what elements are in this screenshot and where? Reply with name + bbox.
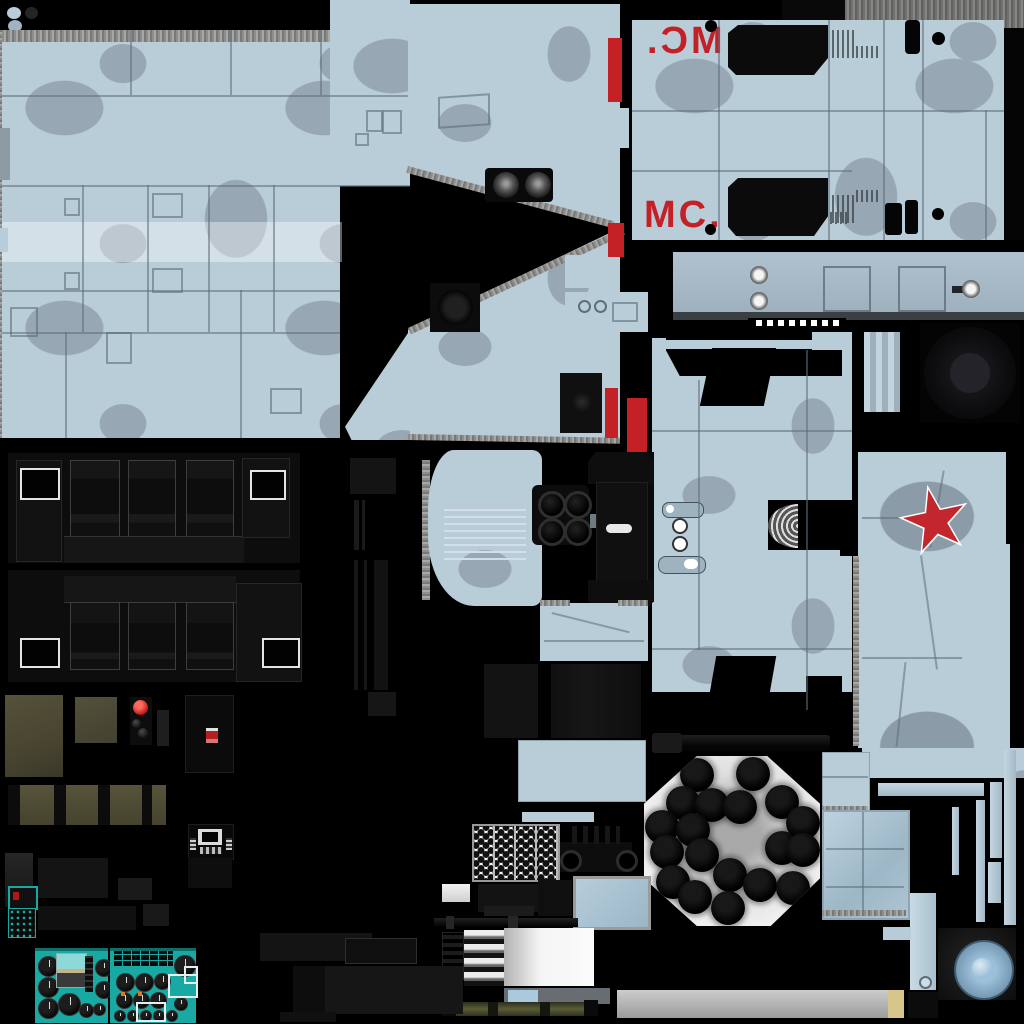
dark-slab <box>38 858 108 898</box>
panel-line <box>652 430 852 432</box>
panel-notch <box>1006 452 1024 544</box>
window-cutout <box>700 348 776 406</box>
panel-line <box>2 95 410 97</box>
device-red-dot <box>13 892 19 900</box>
knob-dome <box>972 958 992 978</box>
rod-fitting <box>446 916 454 929</box>
panel-line <box>862 657 962 659</box>
red-placard <box>206 728 218 743</box>
camo-strip-right <box>862 748 1024 778</box>
blue-chip <box>508 990 538 1002</box>
black-button <box>132 719 141 728</box>
panel-line <box>985 110 987 240</box>
panel-line <box>806 350 808 710</box>
black-plate <box>551 664 641 738</box>
instrument-gauge <box>116 973 135 992</box>
access-hatch-outline <box>152 268 183 293</box>
rocket-tube <box>442 1002 598 1016</box>
fastener-dot <box>578 300 591 313</box>
serrated-edge <box>540 600 570 606</box>
soft-dot <box>572 392 592 412</box>
porthole <box>672 536 688 552</box>
dark-slab <box>118 878 152 900</box>
instrument-gauge <box>58 993 81 1016</box>
blue-bar-vertical <box>976 800 985 922</box>
tube-opening <box>538 518 566 546</box>
tail-boom-star-panel <box>858 452 1010 748</box>
breaker-grid <box>113 951 173 967</box>
access-hatch-outline <box>64 198 80 216</box>
grey-slab <box>157 710 169 746</box>
color-swatch-black <box>25 7 38 19</box>
mech-cluster <box>538 880 572 916</box>
rocket-tube-opening <box>736 757 770 791</box>
access-hatch-outline <box>270 388 302 414</box>
glass-frame-line <box>862 812 864 914</box>
edge-tab <box>0 128 10 180</box>
tail-fin-wedge-tip <box>345 330 410 440</box>
panel-line <box>652 648 852 650</box>
rivet-strip-edge <box>673 312 1024 320</box>
dark-tab <box>280 1012 336 1022</box>
thin-rod <box>362 500 365 550</box>
frame-strut <box>544 640 644 642</box>
red-button <box>133 700 148 715</box>
fastener <box>750 292 768 310</box>
attitude-indicator <box>56 953 87 988</box>
blue-bar-vertical <box>990 782 1002 858</box>
rocket-tube-opening <box>786 833 820 867</box>
panel-line <box>632 110 1004 112</box>
panel-line <box>230 30 232 95</box>
orange-tick <box>121 992 125 996</box>
tube-opening <box>564 518 592 546</box>
black-plate <box>484 664 538 738</box>
display-window <box>20 468 60 500</box>
rocket-tube-opening <box>713 858 747 892</box>
red-marker-bar <box>605 388 618 438</box>
rocket-tube-opening <box>743 868 777 902</box>
rack-tray <box>64 536 244 563</box>
vent-hatching <box>856 46 880 58</box>
dark-slab-frame <box>345 938 417 964</box>
device-boss <box>616 850 638 872</box>
belt-divider <box>8 785 20 825</box>
pin-block <box>200 847 222 854</box>
thin-rod <box>364 560 367 690</box>
bracket-screw <box>919 976 932 989</box>
device-fins <box>572 826 620 844</box>
black-dot <box>932 208 944 220</box>
dark-slab <box>293 966 325 1014</box>
cowling-black-end <box>1004 28 1024 240</box>
panel-line <box>922 20 924 240</box>
tube-opening <box>564 491 592 519</box>
black-button <box>138 728 148 738</box>
access-hatch-outline <box>64 272 80 290</box>
dash-marks <box>756 320 840 326</box>
white-gradient-panel <box>504 928 594 986</box>
panel-line <box>718 20 720 240</box>
display-window <box>250 470 286 500</box>
panel-line <box>883 20 885 240</box>
camo-mid-panel <box>518 740 646 802</box>
small-hatch-piece <box>597 108 629 148</box>
white-box-small <box>442 884 470 902</box>
panel-line <box>65 332 67 438</box>
rocket-tube-opening <box>650 835 684 869</box>
seat-piece-body <box>596 482 648 584</box>
edge-tab <box>0 228 8 252</box>
texture-atlas-sheet: MC. MC. <box>0 0 1024 1024</box>
ribbed-module <box>186 602 234 670</box>
access-hatch-outline <box>10 307 38 337</box>
panel-line <box>130 30 132 95</box>
glass-panel <box>822 810 910 920</box>
dome-light <box>525 172 551 198</box>
dark-slab <box>143 904 169 926</box>
access-square <box>823 266 871 312</box>
window-cutout <box>708 656 776 704</box>
l-bracket-arm <box>883 927 911 940</box>
panel-edge-strip <box>2 30 340 42</box>
orange-tick <box>138 992 142 996</box>
perforated-grille <box>472 824 560 882</box>
thin-rod <box>374 560 388 690</box>
camo-strip-small <box>522 812 594 822</box>
window-cutout <box>806 676 842 706</box>
access-square <box>898 266 946 312</box>
vertical-ribbed-strip <box>85 956 93 992</box>
rod-foot <box>368 692 396 716</box>
mech-bar <box>484 906 534 916</box>
serrated-edge <box>822 910 906 916</box>
dark-slab <box>38 906 136 930</box>
tan-segment <box>888 990 904 1018</box>
instrument-gauge <box>38 998 59 1019</box>
access-hatch-outline <box>366 110 383 132</box>
rack-tray <box>64 576 236 603</box>
panel-line <box>82 185 84 332</box>
gauge-frame <box>136 1002 166 1022</box>
hatch-detail <box>612 302 638 322</box>
black-fitting <box>885 203 902 235</box>
blue-bar-horizontal <box>878 783 984 796</box>
fastener <box>962 280 980 298</box>
seat-piece-top <box>588 452 654 484</box>
belt-divider <box>142 785 152 825</box>
black-notch <box>840 510 854 556</box>
pin-block <box>226 838 232 850</box>
panel-line <box>208 185 210 332</box>
dark-slab <box>188 858 232 888</box>
olive-box-small <box>75 697 117 743</box>
louver-vents <box>444 508 526 560</box>
rocket-pod-face <box>644 756 820 926</box>
access-hatch-outline <box>152 193 183 218</box>
exhaust-opening-bottom <box>728 178 828 236</box>
tube-cap <box>584 1000 598 1016</box>
device-boss <box>560 850 582 872</box>
access-hatch-outline <box>106 332 132 364</box>
tube-band <box>540 1002 550 1016</box>
exhaust-opening-top <box>728 25 828 75</box>
blue-bar-vertical <box>952 807 959 875</box>
panel-line <box>320 30 322 95</box>
connector-window-inner <box>202 832 218 842</box>
red-marker-bar <box>608 223 624 257</box>
black-fitting <box>905 20 920 54</box>
black-fitting <box>905 200 918 234</box>
gun-muzzle <box>652 733 682 753</box>
gauge-frame <box>184 966 198 984</box>
windshield-frame-piece <box>540 603 648 661</box>
camo-light-band <box>2 222 342 262</box>
fuselage-panel-column <box>330 0 410 186</box>
belt-divider <box>98 785 110 825</box>
panel-outline-trapezoid <box>438 93 490 129</box>
window-cutout <box>806 350 842 376</box>
teal-keypad <box>8 908 36 938</box>
panel-line <box>2 332 340 334</box>
ribbed-module <box>128 602 176 670</box>
blue-bar-vertical <box>1004 750 1016 925</box>
box-lid-line <box>822 776 868 778</box>
glass-frame-line <box>826 886 904 888</box>
tube-opening <box>538 491 566 519</box>
glass-box <box>573 876 651 930</box>
vent-circle <box>438 290 473 325</box>
instrument-gauge <box>93 1003 106 1016</box>
porthole <box>672 518 688 534</box>
rocket-tube-opening <box>776 871 810 905</box>
small-hatch-piece <box>565 255 593 288</box>
black-end-box <box>908 992 938 1018</box>
metal-bar <box>617 990 889 1018</box>
panel-line <box>273 185 275 332</box>
serrated-edge <box>618 600 648 606</box>
thin-rod <box>354 560 358 690</box>
rocket-tube-opening <box>678 880 712 914</box>
panel-line <box>698 380 700 650</box>
vent-hatching <box>832 30 854 58</box>
striped-roller <box>464 930 504 986</box>
tube-band <box>488 1002 498 1016</box>
instrument-gauge <box>174 997 188 1011</box>
louver-strip <box>864 332 900 412</box>
olive-box-large <box>5 695 63 777</box>
capsule-dot <box>666 505 674 513</box>
display-window <box>20 638 60 668</box>
access-hatch-outline <box>355 133 369 146</box>
blue-bar-vertical <box>988 862 1001 903</box>
panel-line <box>147 185 149 332</box>
color-swatch-light-blue <box>7 7 21 19</box>
black-dot <box>705 20 717 32</box>
capsule-pill <box>684 559 698 569</box>
panel-line <box>2 185 410 187</box>
belt-divider <box>54 785 66 825</box>
fastener-dot <box>594 300 607 313</box>
serrated-edge <box>853 556 859 746</box>
instrument-gauge <box>135 973 154 992</box>
thin-rod <box>354 500 359 550</box>
fastener <box>750 266 768 284</box>
ribbed-module <box>70 602 120 670</box>
seat-belt-pill <box>606 524 632 533</box>
instrument-gauge <box>114 1010 126 1022</box>
instrument-gauge <box>79 1003 94 1018</box>
panel-line <box>240 290 242 438</box>
red-marker-bar <box>608 38 622 102</box>
vent-hatching <box>830 212 850 224</box>
tire-hub <box>950 353 990 393</box>
glass-frame-line <box>826 848 904 850</box>
access-hatch-outline <box>382 110 402 134</box>
rocket-tube-opening <box>711 891 745 925</box>
thin-gun-rod <box>434 918 578 927</box>
panel-line <box>632 170 852 172</box>
dark-slab <box>350 458 396 494</box>
dome-light <box>493 172 519 198</box>
black-dot <box>705 224 716 235</box>
display-window <box>262 638 300 668</box>
black-dot <box>932 32 945 45</box>
instrument-gauge <box>166 1010 178 1022</box>
vent-hatching <box>856 190 880 202</box>
small-supply-box <box>822 752 870 812</box>
panel-line <box>828 20 830 240</box>
pin-block <box>190 838 196 850</box>
rocket-tube-opening <box>723 790 757 824</box>
